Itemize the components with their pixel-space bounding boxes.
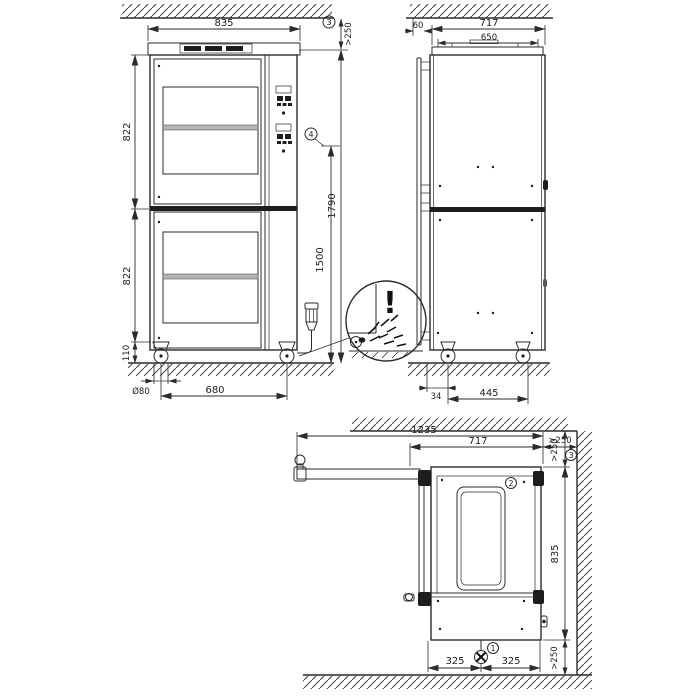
dim-drain-offset-left: 325 — [445, 656, 464, 667]
vent-slot — [226, 46, 243, 51]
dim-upper-height: 822 — [122, 122, 133, 141]
upper-control-panel — [276, 86, 292, 115]
deck-divider — [150, 206, 297, 211]
lower-control-panel — [276, 124, 292, 153]
control-knob — [282, 149, 285, 152]
dimension-drawing: 835 3 >250 822 822 110 Ø80 680 1790 — [0, 0, 700, 700]
dim-total-height: 1790 — [327, 193, 338, 218]
front-view: 835 3 >250 822 822 110 Ø80 680 1790 — [120, 4, 426, 400]
door-latch — [543, 180, 548, 190]
top-view: 2 1 1235 717 >250 3 >250 — [294, 418, 592, 689]
svg-text:4: 4 — [308, 130, 313, 139]
dim-connection-height: 1500 — [315, 247, 326, 272]
svg-text:3: 3 — [326, 18, 331, 27]
callout-1: 1 — [488, 643, 499, 654]
dim-ceiling-clearance: >250 — [344, 22, 354, 45]
lower-deck-door — [154, 212, 261, 348]
dim-base-height: 110 — [122, 345, 132, 361]
rear-wall-hatch — [352, 418, 568, 431]
door-latch — [543, 279, 547, 287]
dim-lower-height: 822 — [122, 266, 133, 285]
front-wall-hatch — [303, 675, 592, 689]
power-plug — [297, 303, 318, 353]
callout-4: 4 — [305, 128, 324, 146]
dim-drain-offset-right: 325 — [501, 656, 520, 667]
technical-drawing-page: 835 3 >250 822 822 110 Ø80 680 1790 — [0, 0, 700, 700]
side-wall-hatch — [577, 431, 592, 675]
floor-hatch — [408, 363, 550, 376]
dim-wall-offset: 60 — [413, 21, 424, 31]
dim-top-depth: 650 — [481, 33, 497, 43]
callout-3-front: 3 — [323, 16, 335, 28]
dim-side-depth: 717 — [479, 18, 498, 29]
top-vent-cutout — [457, 487, 505, 590]
dim-caster-diameter: Ø80 — [132, 386, 150, 397]
door-closed-position — [404, 486, 424, 601]
front-casters — [153, 342, 295, 363]
vent-slot — [184, 46, 201, 51]
ceiling-hatch — [410, 4, 550, 18]
dim-caster-spacing: 680 — [205, 385, 224, 396]
dim-plan-width: 835 — [550, 544, 561, 563]
door-hinge — [418, 592, 431, 606]
upper-deck-door — [154, 59, 261, 204]
svg-text:1: 1 — [490, 644, 495, 653]
drain-connection — [475, 640, 488, 664]
no-spray-warning-detail: ! — [299, 281, 426, 361]
dim-front-width: 835 — [214, 18, 233, 29]
ceiling-hatch — [122, 4, 332, 18]
door-open-position — [294, 455, 420, 481]
dim-door-open-depth: 1235 — [411, 425, 436, 436]
control-knob — [282, 111, 285, 114]
callout-3-plan: 3 — [566, 450, 577, 461]
rear-spacer — [417, 58, 430, 345]
svg-text:3: 3 — [568, 451, 573, 460]
dim-caster-back-offset: 34 — [431, 392, 442, 402]
svg-text:2: 2 — [508, 479, 513, 488]
dim-side-clearance-top: >250 — [550, 438, 560, 461]
door-hinge — [533, 471, 544, 486]
power-cable — [297, 330, 312, 353]
side-casters — [441, 342, 530, 363]
dim-plan-depth: 717 — [468, 436, 487, 447]
floor-hatch — [128, 363, 334, 376]
dim-side-clearance-bottom: >250 — [550, 646, 560, 669]
warning-exclamation: ! — [383, 286, 397, 321]
side-view: 60 717 650 34 445 — [405, 4, 553, 404]
door-hinge — [533, 590, 544, 604]
cabinet-plan-outline — [431, 467, 541, 640]
cabinet-front-outline — [150, 55, 297, 350]
cabinet-side-outline — [430, 55, 545, 350]
vent-slot — [205, 46, 222, 51]
dim-side-caster-spacing: 445 — [479, 388, 498, 399]
deck-divider — [430, 207, 545, 212]
callout-2: 2 — [506, 478, 517, 489]
